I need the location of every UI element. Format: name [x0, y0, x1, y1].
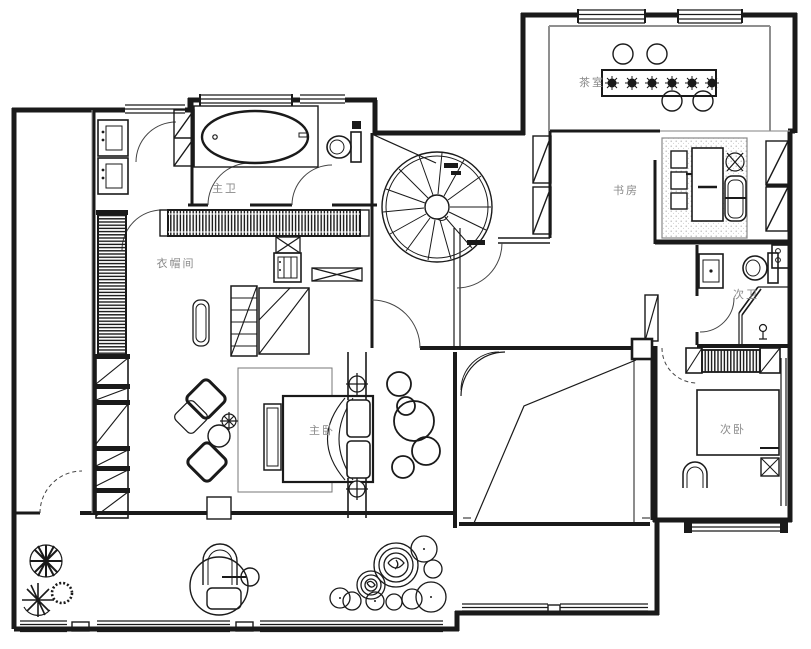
room-label-master-bedroom: 主卧	[309, 424, 335, 437]
stool-square	[207, 497, 231, 519]
room-label-study: 书房	[613, 184, 639, 197]
threshold-cabinet	[312, 268, 362, 281]
spoke-plant	[22, 583, 54, 617]
bed-master	[264, 396, 373, 482]
island-bench	[193, 300, 209, 346]
room-label-tea-room: 茶室	[579, 75, 605, 89]
shelving-column	[94, 354, 130, 518]
room-study	[662, 138, 747, 238]
room-tea	[602, 44, 719, 111]
void-space	[461, 339, 652, 523]
fan-plant	[30, 545, 62, 577]
double-vanity	[98, 120, 128, 194]
round-side-table	[208, 425, 230, 447]
tub-overflow	[299, 133, 307, 137]
island-cabinet-ladder	[231, 286, 257, 356]
appliance-cabinet	[274, 253, 301, 282]
room-labels: 主卫 衣帽间 主卧 茶室 书房 次卫 次卧	[157, 75, 760, 437]
study-stool	[671, 151, 687, 168]
room-label-cloakroom: 衣帽间	[157, 256, 196, 270]
room-master-bath	[174, 106, 361, 167]
circle-decor-cluster	[387, 372, 440, 478]
seat-markers	[605, 76, 719, 90]
floor-plan: 主卫 衣帽间 主卧 茶室 书房 次卫 次卧	[0, 0, 811, 649]
armchair	[173, 378, 228, 436]
windows	[20, 9, 788, 632]
study-window-wall	[766, 141, 788, 231]
desk-chair	[725, 176, 746, 221]
room-master-bedroom	[173, 352, 373, 519]
table-marker	[220, 412, 238, 430]
stair-window-wall	[498, 136, 551, 243]
wall-marker	[346, 373, 368, 395]
tub-faucet	[213, 135, 217, 139]
plant-cluster	[330, 536, 446, 612]
sloped-ceiling-line	[474, 360, 636, 523]
floor-plan-svg: 主卫 衣帽间 主卧 茶室 书房 次卫 次卧	[0, 0, 811, 649]
pillow	[347, 400, 370, 437]
study-stool	[671, 193, 687, 209]
floor-drain	[760, 325, 767, 332]
nightstand	[761, 458, 779, 476]
room-second-bedroom	[683, 348, 780, 488]
lounge-chair	[190, 544, 259, 615]
room-label-master-bath: 主卫	[212, 182, 238, 195]
bedroom2-wardrobe	[686, 348, 780, 373]
island-cabinet-diagonal	[259, 288, 309, 354]
x-cabinet	[276, 237, 300, 253]
bed-second	[697, 390, 779, 455]
door-arcs	[40, 122, 734, 513]
room-label-second-bath: 次卫	[733, 287, 759, 301]
study-stool	[671, 172, 687, 189]
wardrobe-left-run	[96, 210, 128, 356]
study-desk	[692, 148, 723, 221]
spiky-shrub	[52, 583, 72, 603]
washer	[772, 245, 790, 268]
bedroom2-chair	[683, 462, 707, 488]
wardrobe-top-run	[160, 210, 369, 236]
pillow	[347, 441, 370, 478]
room-label-second-bedroom: 次卧	[720, 422, 746, 436]
bathtub	[202, 111, 308, 163]
curved-glass-corner	[461, 352, 505, 396]
inner-walls	[14, 26, 792, 528]
spiral-staircase	[374, 135, 492, 262]
basin	[699, 254, 723, 288]
tea-stools	[613, 44, 713, 111]
toilet-master	[327, 121, 361, 162]
column	[632, 339, 652, 359]
